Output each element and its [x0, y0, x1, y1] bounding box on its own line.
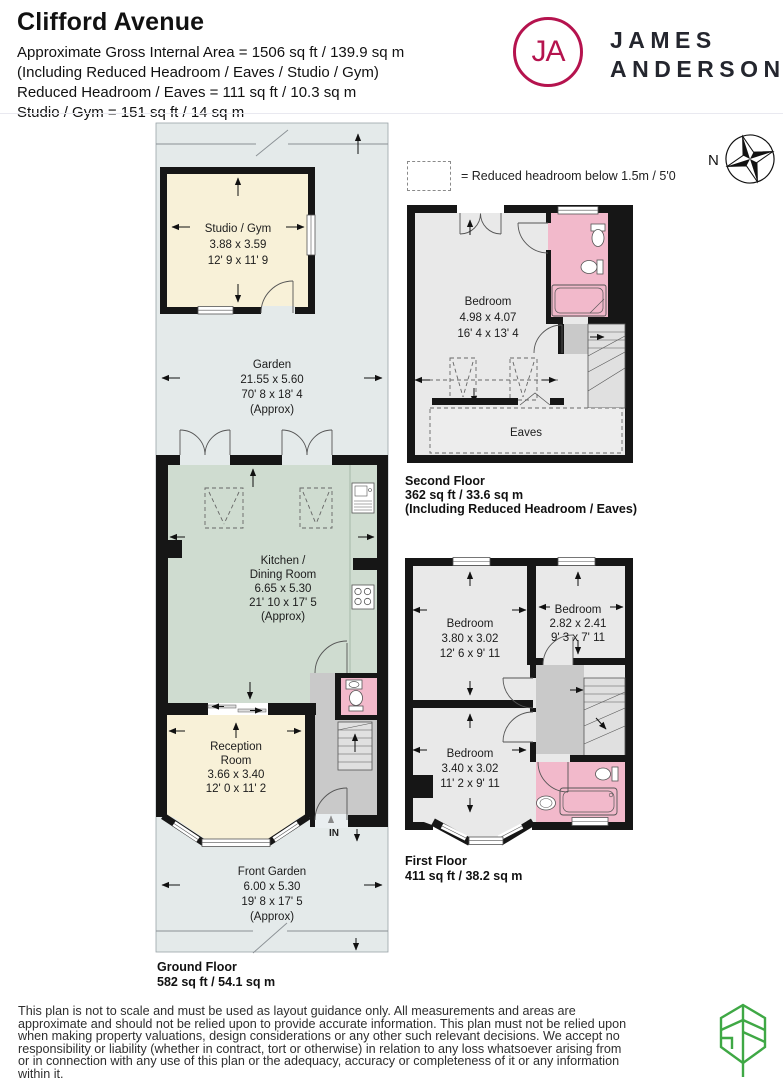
basin-icon: [591, 224, 605, 247]
bedroom-rear-label: Bedroom: [447, 618, 494, 630]
page-title: Clifford Avenue: [17, 8, 404, 37]
front-garden-dims-m: 6.00 x 5.30: [244, 881, 301, 893]
bay-window-icon: [413, 818, 533, 845]
reduced-headroom-line: Reduced Headroom / Eaves = 111 sq ft / 1…: [17, 83, 404, 103]
bathroom-room: [536, 762, 625, 822]
james-anderson-monogram-icon: JA: [513, 17, 583, 87]
reception-label-2: Room: [221, 755, 252, 767]
toilet-icon: [596, 767, 619, 781]
north-compass: N: [700, 122, 782, 196]
front-garden-label: Front Garden: [238, 866, 306, 878]
header: Clifford Avenue Approximate Gross Intern…: [17, 8, 404, 123]
toilet-icon: [581, 260, 603, 274]
second-floor-plan: Bedroom 4.98 x 4.07 16' 4 x 13' 4: [400, 195, 645, 520]
including-line: (Including Reduced Headroom / Eaves / St…: [17, 63, 404, 83]
brand-line-1: JAMES: [610, 26, 783, 55]
bedroom-front-label: Bedroom: [447, 748, 494, 760]
bedroom-rear-dims-ft: 12' 6 x 9' 11: [440, 648, 500, 660]
first-floor-area: 411 sq ft / 38.2 sq m: [405, 869, 522, 883]
bedroom-dims-ft: 16' 4 x 13' 4: [457, 328, 519, 340]
basin-icon: [537, 796, 556, 810]
first-floor-plan: Bedroom 3.80 x 3.02 12' 6 x 9' 11 Bedroo…: [400, 550, 645, 890]
monogram-letters: JA: [531, 35, 564, 69]
kitchen-dims-ft: 21' 10 x 17' 5: [249, 597, 317, 609]
second-floor-area: 362 sq ft / 33.6 sq m: [405, 488, 523, 502]
garden-approx: (Approx): [250, 404, 294, 416]
reception-room: Reception Room 3.66 x 3.40 12' 0 x 11' 2: [156, 715, 315, 817]
header-divider: [0, 113, 783, 114]
dashed-area-icon: [407, 161, 451, 191]
reduced-headroom-legend: = Reduced headroom below 1.5m / 5'0: [407, 161, 676, 191]
door-opening: [261, 306, 295, 315]
ground-floor-label: Ground Floor: [157, 960, 237, 974]
compass-north-label: N: [708, 152, 719, 169]
eaves-label: Eaves: [510, 427, 542, 439]
bedroom-front-dims-ft: 11' 2 x 9' 11: [440, 778, 500, 790]
gross-area-line: Approximate Gross Internal Area = 1506 s…: [17, 43, 404, 63]
front-garden-dims-ft: 19' 8 x 17' 5: [241, 896, 302, 908]
pocket-door: [156, 703, 316, 715]
floorplan-page: Clifford Avenue Approximate Gross Intern…: [0, 0, 783, 1080]
leaf-logo-icon: [712, 1002, 774, 1080]
front-garden-approx: (Approx): [250, 911, 294, 923]
legend-label: = Reduced headroom below 1.5m / 5'0: [461, 169, 676, 183]
studio-label: Studio / Gym: [205, 223, 271, 235]
stairs-icon: [338, 722, 372, 770]
kitchen-dims-m: 6.65 x 5.30: [255, 583, 312, 595]
bedroom-front-dims-m: 3.40 x 3.02: [442, 763, 499, 775]
garden-dims-ft: 70' 8 x 18' 4: [241, 389, 303, 401]
disclaimer-text: This plan is not to scale and must be us…: [18, 1005, 636, 1080]
entrance-label: IN: [329, 828, 339, 839]
second-floor-label: Second Floor: [405, 474, 485, 488]
brand-line-2: ANDERSON: [610, 55, 783, 84]
reception-label-1: Reception: [210, 741, 262, 753]
ground-floor-plan: Studio / Gym 3.88 x 3.59 12' 9 x 11' 9 G…: [150, 120, 390, 1005]
reception-dims-ft: 12' 0 x 11' 2: [206, 783, 266, 795]
toilet-icon: [349, 691, 363, 712]
garden-dims-m: 21.55 x 5.60: [240, 374, 303, 386]
ground-floor-area: 582 sq ft / 54.1 sq m: [157, 975, 275, 989]
sink-icon: [352, 483, 374, 513]
second-floor-note: (Including Reduced Headroom / Eaves): [405, 502, 637, 516]
bedroom-small-dims-m: 2.82 x 2.41: [550, 618, 607, 630]
first-floor-label: First Floor: [405, 854, 467, 868]
bedroom-small-label: Bedroom: [555, 604, 602, 616]
reception-dims-m: 3.66 x 3.40: [208, 769, 265, 781]
compass-rose-icon: [720, 129, 780, 189]
landing: [564, 324, 588, 354]
hob-icon: [352, 585, 374, 609]
eaves-area: Eaves: [430, 408, 622, 453]
kitchen-label-1: Kitchen /: [261, 555, 307, 567]
bedroom-label: Bedroom: [465, 296, 512, 308]
bedroom-rear-dims-m: 3.80 x 3.02: [442, 633, 499, 645]
bedroom-dims-m: 4.98 x 4.07: [460, 312, 517, 324]
stairs-icon: [588, 324, 625, 408]
studio-dims-ft: 12' 9 x 11' 9: [208, 255, 268, 267]
studio-gym-room: Studio / Gym 3.88 x 3.59 12' 9 x 11' 9: [160, 167, 315, 315]
kitchen-approx: (Approx): [261, 611, 305, 623]
kitchen-label-2: Dining Room: [250, 569, 316, 581]
basin-icon: [346, 680, 362, 689]
landing: [536, 665, 584, 755]
james-anderson-wordmark: JAMES ANDERSON: [610, 26, 783, 84]
studio-dims-m: 3.88 x 3.59: [210, 239, 267, 251]
garden-label: Garden: [253, 359, 291, 371]
